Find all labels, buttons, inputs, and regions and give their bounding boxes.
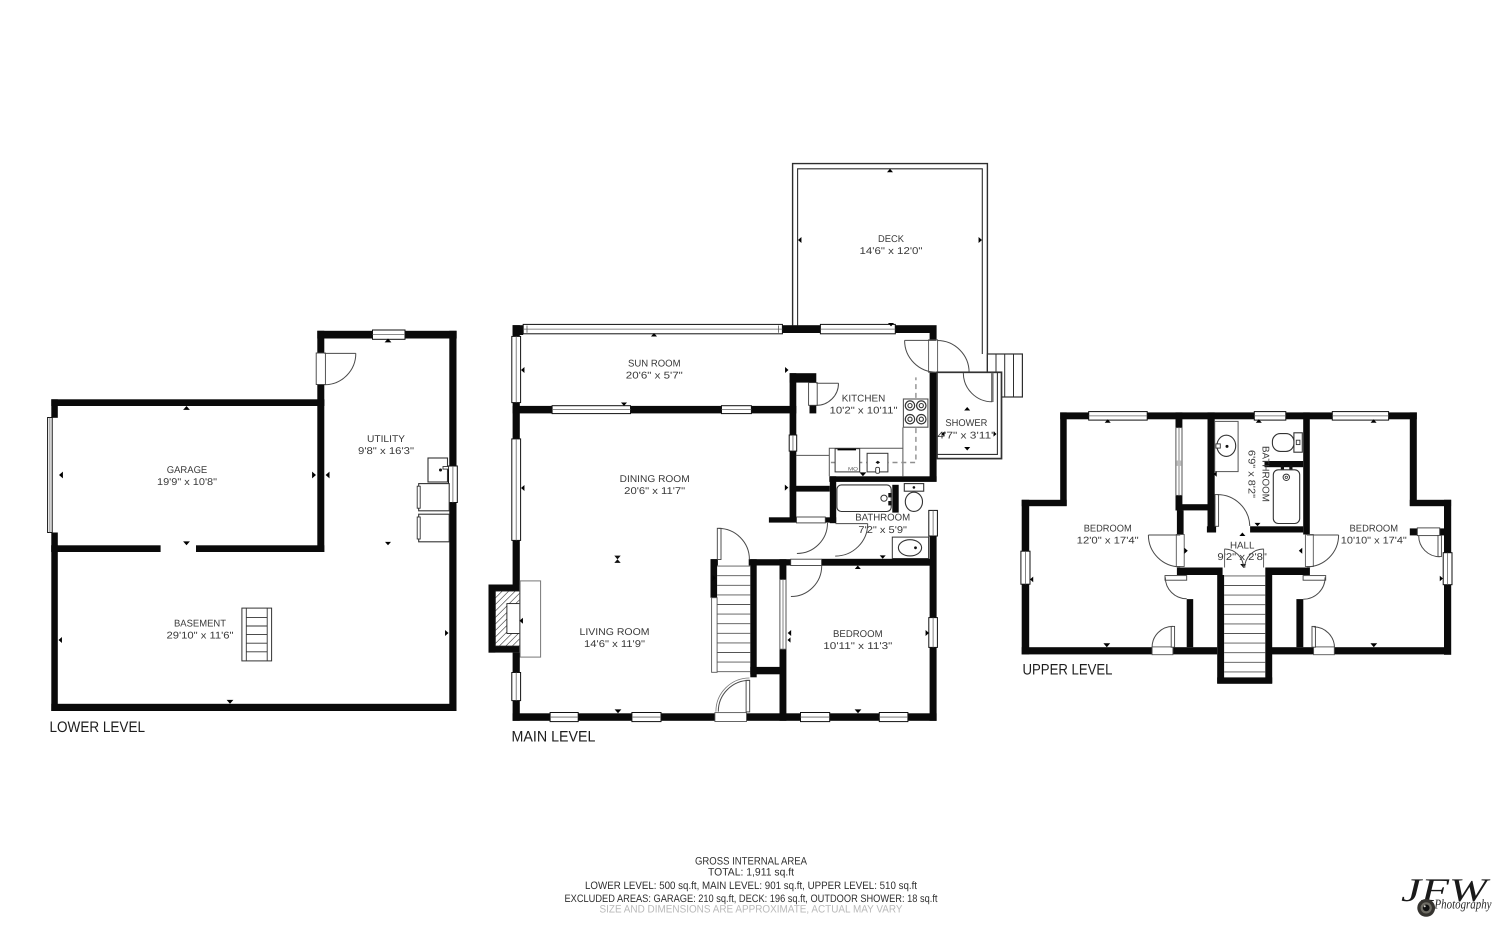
svg-text:9'8" x 16'3": 9'8" x 16'3" [358, 446, 415, 457]
svg-text:14'6" x 12'0": 14'6" x 12'0" [860, 246, 924, 257]
svg-text:7'2" x 5'9": 7'2" x 5'9" [858, 525, 907, 536]
svg-text:10'2" x 10'11": 10'2" x 10'11" [830, 406, 899, 417]
svg-text:KITCHEN: KITCHEN [842, 394, 886, 405]
svg-text:BEDROOM: BEDROOM [833, 629, 883, 640]
svg-text:6'9" x 8'2": 6'9" x 8'2" [1246, 450, 1257, 499]
svg-text:SUN ROOM: SUN ROOM [628, 359, 681, 370]
svg-text:DINING ROOM: DINING ROOM [620, 474, 690, 485]
svg-text:LOWER LEVEL: 500 sq.ft, MAIN L: LOWER LEVEL: 500 sq.ft, MAIN LEVEL: 901 … [585, 880, 917, 892]
svg-text:BASEMENT: BASEMENT [174, 619, 226, 630]
svg-text:12'0" x 17'4": 12'0" x 17'4" [1077, 536, 1140, 547]
svg-text:SIZE AND DIMENSIONS ARE APPROX: SIZE AND DIMENSIONS ARE APPROXIMATE, ACT… [600, 903, 903, 915]
svg-text:10'10" x 17'4": 10'10" x 17'4" [1341, 536, 1408, 547]
svg-text:BEDROOM: BEDROOM [1350, 524, 1399, 535]
svg-text:SHOWER: SHOWER [945, 418, 987, 429]
svg-text:TOTAL: 1,911 sq.ft: TOTAL: 1,911 sq.ft [708, 866, 794, 878]
svg-text:29'10" x 11'6": 29'10" x 11'6" [167, 631, 235, 642]
svg-text:14'6" x 11'9": 14'6" x 11'9" [584, 639, 646, 650]
svg-text:LIVING ROOM: LIVING ROOM [580, 627, 650, 638]
svg-text:4'7" x 3'11": 4'7" x 3'11" [937, 430, 996, 441]
svg-text:19'9" x 10'8": 19'9" x 10'8" [157, 477, 218, 488]
svg-text:UTILITY: UTILITY [367, 434, 405, 445]
svg-text:LOWER LEVEL: LOWER LEVEL [50, 719, 146, 736]
svg-text:BEDROOM: BEDROOM [1084, 524, 1132, 535]
svg-text:MO: MO [848, 467, 858, 473]
svg-text:HALL: HALL [1230, 540, 1255, 551]
svg-text:10'11" x 11'3": 10'11" x 11'3" [823, 641, 893, 652]
svg-text:UPPER LEVEL: UPPER LEVEL [1023, 662, 1113, 679]
svg-text:DECK: DECK [878, 234, 904, 245]
svg-text:20'6" x 11'7": 20'6" x 11'7" [624, 486, 686, 497]
svg-text:Photography: Photography [1434, 897, 1492, 912]
svg-text:BATHROOM: BATHROOM [1260, 446, 1271, 502]
svg-text:BATHROOM: BATHROOM [855, 513, 910, 524]
svg-text:MAIN LEVEL: MAIN LEVEL [512, 729, 596, 746]
svg-text:GARAGE: GARAGE [167, 465, 208, 476]
svg-text:20'6" x 5'7": 20'6" x 5'7" [626, 371, 684, 382]
